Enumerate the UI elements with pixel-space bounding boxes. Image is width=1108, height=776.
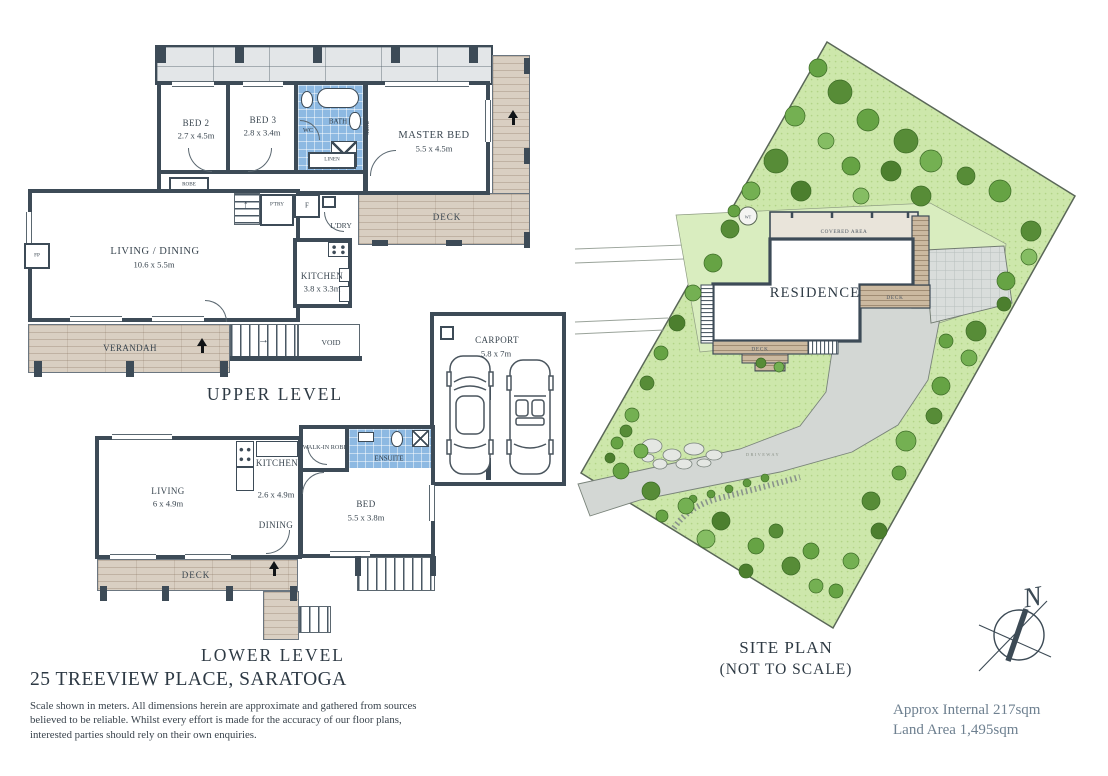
post (524, 232, 530, 248)
tree-icon (1021, 221, 1041, 241)
laundry-tub-icon (322, 196, 336, 208)
tree-icon (739, 564, 753, 578)
tree-icon (654, 346, 668, 360)
property-address: 25 TREEVIEW PLACE, SARATOGA (30, 669, 347, 691)
robe-label: ROBE (363, 121, 370, 135)
covered-area-label: COVERED AREA (821, 229, 868, 235)
tree-icon (862, 492, 880, 510)
wall (161, 170, 365, 174)
wall (303, 468, 349, 472)
tree-icon (911, 186, 931, 206)
deck-label-lower: DECK (182, 570, 211, 582)
post (34, 361, 42, 377)
tree-icon (721, 220, 739, 238)
driveway-label: DRIVEWAY (746, 452, 780, 457)
upper-level-caption: UPPER LEVEL (207, 384, 343, 405)
carport-label: CARPORT (475, 335, 519, 347)
toilet-icon (391, 431, 403, 447)
up-arrow-icon (269, 561, 279, 576)
tree-icon (769, 524, 783, 538)
toilet-icon (301, 91, 313, 108)
tree-icon (881, 161, 901, 181)
post (430, 556, 436, 576)
room-label-bath: BATH (329, 117, 347, 126)
stair-arrow-icon: → (258, 335, 269, 346)
sink-icon (339, 286, 350, 302)
sink-counter (256, 441, 298, 457)
tree-icon (613, 463, 629, 479)
window (70, 316, 122, 322)
tree-icon (625, 408, 639, 422)
room-dims-living: 6 x 4.9m (153, 498, 183, 509)
cooktop-icon (236, 441, 254, 467)
tree-icon (728, 205, 740, 217)
post (290, 586, 297, 601)
car-icon (447, 356, 493, 474)
tree-icon (989, 180, 1011, 202)
room-dims-master: 5.5 x 4.5m (416, 143, 453, 154)
ensuite-label: ENSUITE (374, 454, 403, 463)
site-stairs-west (701, 285, 713, 343)
site-stairs (808, 341, 838, 354)
cars (438, 352, 562, 482)
tree-icon (871, 523, 887, 539)
post (100, 586, 107, 601)
room-label-bed3: BED 3 (250, 115, 277, 127)
post (220, 361, 228, 377)
tree-icon (785, 106, 805, 126)
tree-icon (774, 362, 784, 372)
tree-icon (1021, 249, 1037, 265)
tree-icon (843, 553, 859, 569)
tree-icon (742, 182, 760, 200)
tree-icon (957, 167, 975, 185)
post (524, 148, 530, 164)
room-dims-kitchen-lower: 2.6 x 4.9m (258, 489, 295, 500)
post (355, 556, 361, 576)
tree-icon (818, 133, 834, 149)
wall (230, 356, 362, 361)
tree-icon (961, 350, 977, 366)
room-label-living: LIVING (151, 486, 184, 498)
counter (236, 467, 254, 491)
tree-icon (920, 150, 942, 172)
north-compass-icon: N (979, 581, 1051, 671)
lower-level-caption: LOWER LEVEL (201, 645, 345, 666)
basin-icon (349, 112, 361, 130)
deck-stairs (299, 606, 331, 633)
external-stairs (357, 557, 435, 591)
tree-icon (842, 157, 860, 175)
tree-icon (892, 466, 906, 480)
room-dims-living-dining: 10.6 x 5.5m (133, 259, 174, 270)
verandah-label: VERANDAH (103, 343, 157, 355)
tree-icon (939, 334, 953, 348)
deck-label: DECK (433, 212, 462, 224)
window (385, 81, 469, 87)
tree-icon (756, 358, 766, 368)
tree-icon (926, 408, 942, 424)
pantry-cupboard (260, 194, 294, 226)
tree-icon (896, 431, 916, 451)
shower-icon (412, 430, 429, 447)
tree-icon (748, 538, 764, 554)
room-label-kitchen-lower: KITCHEN (256, 458, 298, 470)
tree-icon (605, 453, 615, 463)
tree-icon (697, 530, 715, 548)
tree-icon (803, 543, 819, 559)
window (172, 81, 214, 87)
deck-east-label: DECK (886, 295, 903, 301)
tree-icon (857, 109, 879, 131)
tree-icon (829, 584, 843, 598)
floorplan-page: WT COVERED AREA DECK DECK RESIDENCE DRIV… (0, 0, 1108, 776)
tree-icon (853, 188, 869, 204)
tree-icon (634, 444, 648, 458)
room-label-bed: BED (356, 499, 375, 511)
tree-icon (640, 376, 654, 390)
tree-icon (611, 437, 623, 449)
site-plan-scale-note: (NOT TO SCALE) (720, 661, 853, 678)
basin-icon (358, 432, 374, 442)
tree-icon (894, 129, 918, 153)
deck-south-label: DECK (751, 347, 768, 353)
carport-dims: 5.8 x 7m (481, 348, 511, 359)
tree-icon (704, 254, 722, 272)
room-label-bed2: BED 2 (183, 118, 210, 130)
up-arrow-icon (508, 110, 518, 125)
tree-icon (997, 297, 1011, 311)
tree-icon (620, 425, 632, 437)
fridge-label: F (305, 201, 309, 210)
tree-icon (828, 80, 852, 104)
meter-box-icon (440, 326, 454, 340)
room-label-kitchen: KITCHEN (301, 271, 343, 283)
tree-icon (997, 272, 1015, 290)
stair-arrow-icon: ↑ (243, 200, 249, 211)
disclaimer-text: Scale shown in meters. All dimensions he… (30, 699, 422, 742)
room-dims-bed2: 2.7 x 4.5m (178, 130, 215, 141)
window (243, 81, 283, 87)
bathtub-icon (317, 88, 359, 108)
wall (226, 85, 230, 173)
cooktop-icon (328, 242, 349, 257)
post (524, 58, 530, 74)
room-label-living-dining: LIVING / DINING (110, 245, 199, 259)
room-label-wc: WC (303, 127, 313, 135)
up-arrow-icon (197, 338, 207, 353)
linen-label: LINEN (324, 157, 340, 164)
car-icon (507, 360, 553, 474)
void-label: VOID (322, 338, 341, 348)
room-dims-bed: 5.5 x 3.8m (348, 512, 385, 523)
roof-studs (157, 45, 491, 63)
tree-icon (678, 498, 694, 514)
wall (363, 85, 368, 191)
tree-icon (764, 149, 788, 173)
post (372, 240, 388, 246)
dining-label: DINING (259, 520, 293, 532)
tree-icon (712, 512, 730, 530)
tree-icon (791, 181, 811, 201)
window (152, 316, 204, 322)
tree-icon (809, 579, 823, 593)
laundry-label: L'DRY (330, 221, 352, 231)
area-summary: Approx Internal 217sqm Land Area 1,495sq… (893, 701, 1040, 740)
tree-icon (669, 315, 685, 331)
window (112, 434, 172, 440)
fireplace-label: FP (34, 253, 40, 260)
post (162, 586, 169, 601)
post (226, 586, 233, 601)
approx-internal-area: Approx Internal 217sqm (893, 701, 1040, 721)
robe-label: ROBE (182, 182, 196, 189)
post (126, 361, 134, 377)
room-dims-kitchen: 3.8 x 3.3m (304, 283, 341, 294)
room-dims-bed3: 2.8 x 3.4m (244, 127, 281, 138)
walkin-robe-label: WALK-IN ROBE (301, 444, 349, 452)
room-label-master: MASTER BED (398, 129, 469, 143)
tree-icon (642, 482, 660, 500)
land-area: Land Area 1,495sqm (893, 721, 1040, 741)
post (446, 240, 462, 246)
tree-icon (685, 285, 701, 301)
water-tank-label: WT (745, 215, 752, 220)
site-plan-caption: SITE PLAN (739, 638, 833, 657)
tree-icon (932, 377, 950, 395)
tree-icon (966, 321, 986, 341)
tree-icon (782, 557, 800, 575)
window (429, 485, 435, 521)
window (485, 100, 491, 142)
pantry-label: P'TRY (270, 202, 284, 209)
residence-label: RESIDENCE (770, 285, 861, 301)
tree-icon (656, 510, 668, 522)
tree-icon (809, 59, 827, 77)
